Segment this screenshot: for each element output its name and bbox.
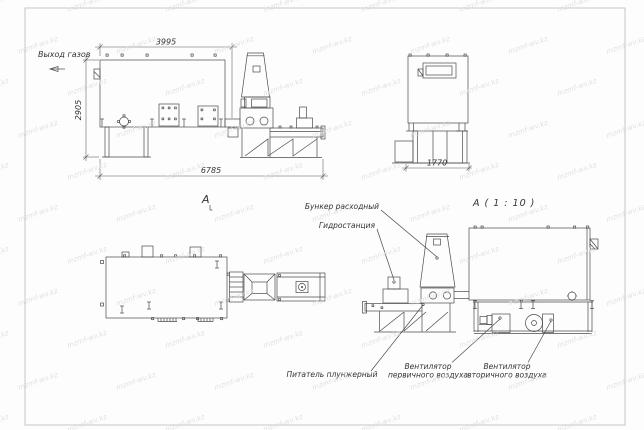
watermark-text: mzmf-wv.kz xyxy=(0,329,10,350)
watermark-text: mzmf-wv.kz xyxy=(507,287,549,308)
watermark-text: mzmf-wv.kz xyxy=(0,77,10,98)
watermark-layer: mzmf-wv.kzmzmf-wv.kzmzmf-wv.kzmzmf-wv.kz… xyxy=(0,0,644,430)
watermark-text: mzmf-wv.kz xyxy=(409,119,451,140)
top-edge-bolts xyxy=(106,54,216,56)
watermark-text: mzmf-wv.kz xyxy=(66,413,108,430)
watermark-text: mzmf-wv.kz xyxy=(66,329,108,350)
dim-left-height xyxy=(83,56,99,161)
watermark-text: mzmf-wv.kz xyxy=(556,161,598,182)
watermark-text: mzmf-wv.kz xyxy=(262,77,304,98)
detail-body xyxy=(469,228,590,300)
watermark-text: mzmf-wv.kz xyxy=(409,287,451,308)
watermark-text: mzmf-wv.kz xyxy=(605,371,644,392)
watermark-text: mzmf-wv.kz xyxy=(556,0,598,14)
watermark-text: mzmf-wv.kz xyxy=(360,0,402,14)
watermark-text: mzmf-wv.kz xyxy=(66,77,108,98)
watermark-text: mzmf-wv.kz xyxy=(262,0,304,14)
watermark-text: mzmf-wv.kz xyxy=(0,245,10,266)
watermark-text: mzmf-wv.kz xyxy=(115,371,157,392)
watermark-text: mzmf-wv.kz xyxy=(262,161,304,182)
top-view-edge-bolts xyxy=(101,255,223,320)
watermark-text: mzmf-wv.kz xyxy=(66,245,108,266)
watermark-text: mzmf-wv.kz xyxy=(311,35,353,56)
deck-box-2 xyxy=(198,106,218,126)
watermark-text: mzmf-wv.kz xyxy=(409,203,451,224)
top-view-body xyxy=(106,257,227,318)
watermark-text: mzmf-wv.kz xyxy=(458,329,500,350)
watermark-text: mzmf-wv.kz xyxy=(360,161,402,182)
watermark-text: mzmf-wv.kz xyxy=(115,35,157,56)
watermark-text: mzmf-wv.kz xyxy=(66,161,108,182)
watermark-text: mzmf-wv.kz xyxy=(164,0,206,14)
top-view-box-1 xyxy=(142,246,153,257)
watermark-text: mzmf-wv.kz xyxy=(17,371,59,392)
section-label-tick xyxy=(210,205,213,210)
watermark-text: mzmf-wv.kz xyxy=(164,329,206,350)
watermark-text: mzmf-wv.kz xyxy=(213,287,255,308)
watermark-text: mzmf-wv.kz xyxy=(164,161,206,182)
feeder-truss xyxy=(374,303,456,332)
watermark-text: mzmf-wv.kz xyxy=(556,413,598,430)
watermark-text: mzmf-wv.kz xyxy=(17,203,59,224)
callout-hydrostation-label: Гидростанция xyxy=(319,221,376,230)
gas-outlet-label: Выход газов xyxy=(38,50,91,59)
watermark-text: mzmf-wv.kz xyxy=(0,0,10,14)
watermark-text: mzmf-wv.kz xyxy=(115,119,157,140)
watermark-text: mzmf-wv.kz xyxy=(556,245,598,266)
dim-end-width-value: 1770 xyxy=(427,159,447,168)
watermark-text: mzmf-wv.kz xyxy=(458,413,500,430)
watermark-text: mzmf-wv.kz xyxy=(360,245,402,266)
watermark-text: mzmf-wv.kz xyxy=(507,119,549,140)
watermark-text: mzmf-wv.kz xyxy=(213,203,255,224)
end-elevation-view: 1770 xyxy=(392,54,472,172)
top-view-comb-strips xyxy=(158,318,213,322)
watermark-text: mzmf-wv.kz xyxy=(409,35,451,56)
top-view-anchor-marks xyxy=(120,261,223,313)
watermark-text: mzmf-wv.kz xyxy=(164,245,206,266)
gas-outlet-stub xyxy=(94,69,100,79)
watermark-text: mzmf-wv.kz xyxy=(17,287,59,308)
watermark-text: mzmf-wv.kz xyxy=(360,77,402,98)
watermark-text: mzmf-wv.kz xyxy=(164,413,206,430)
dim-left-height-value: 2905 xyxy=(74,100,83,120)
support-truss xyxy=(240,128,322,158)
watermark-text: mzmf-wv.kz xyxy=(115,287,157,308)
hydrostation xyxy=(383,277,408,303)
watermark-text: mzmf-wv.kz xyxy=(311,119,353,140)
boiler-body xyxy=(100,60,225,127)
watermark-text: mzmf-wv.kz xyxy=(605,35,644,56)
watermark-text: mzmf-wv.kz xyxy=(262,329,304,350)
side-elevation-view: Выход газов 3995 2905 xyxy=(38,38,328,181)
watermark-text: mzmf-wv.kz xyxy=(311,287,353,308)
watermark-text: mzmf-wv.kz xyxy=(0,161,10,182)
detail-anchor-bolts xyxy=(473,300,594,309)
top-view-feeder xyxy=(277,273,325,301)
watermark-text: mzmf-wv.kz xyxy=(507,35,549,56)
watermark-text: mzmf-wv.kz xyxy=(66,0,108,14)
watermark-text: mzmf-wv.kz xyxy=(458,0,500,14)
deck-box-1 xyxy=(159,104,179,126)
watermark-text: mzmf-wv.kz xyxy=(605,119,644,140)
watermark-text: mzmf-wv.kz xyxy=(458,161,500,182)
gas-flow-arrow-icon xyxy=(50,67,65,72)
detail-title: А ( 1 : 10 ) xyxy=(472,198,535,209)
watermark-text: mzmf-wv.kz xyxy=(556,329,598,350)
watermark-text: mzmf-wv.kz xyxy=(115,203,157,224)
watermark-text: mzmf-wv.kz xyxy=(605,203,644,224)
detail-flange xyxy=(567,291,577,301)
watermark-text: mzmf-wv.kz xyxy=(164,77,206,98)
watermark-text: mzmf-wv.kz xyxy=(262,245,304,266)
watermark-text: mzmf-wv.kz xyxy=(458,245,500,266)
secondary-air-fan xyxy=(526,314,554,333)
dim-top-width-value: 3995 xyxy=(156,38,176,47)
watermark-text: mzmf-wv.kz xyxy=(0,413,10,430)
drawing-sheet: Выход газов 3995 2905 xyxy=(0,0,644,430)
section-label-a: A xyxy=(201,193,210,206)
watermark-text: mzmf-wv.kz xyxy=(458,77,500,98)
end-top-opening xyxy=(418,63,456,78)
deck-flange xyxy=(118,115,131,128)
watermark-text: mzmf-wv.kz xyxy=(556,77,598,98)
watermark-text: mzmf-wv.kz xyxy=(605,287,644,308)
watermark-text: mzmf-wv.kz xyxy=(360,413,402,430)
watermark-text: mzmf-wv.kz xyxy=(213,371,255,392)
watermark-text: mzmf-wv.kz xyxy=(17,119,59,140)
watermark-text: mzmf-wv.kz xyxy=(262,413,304,430)
